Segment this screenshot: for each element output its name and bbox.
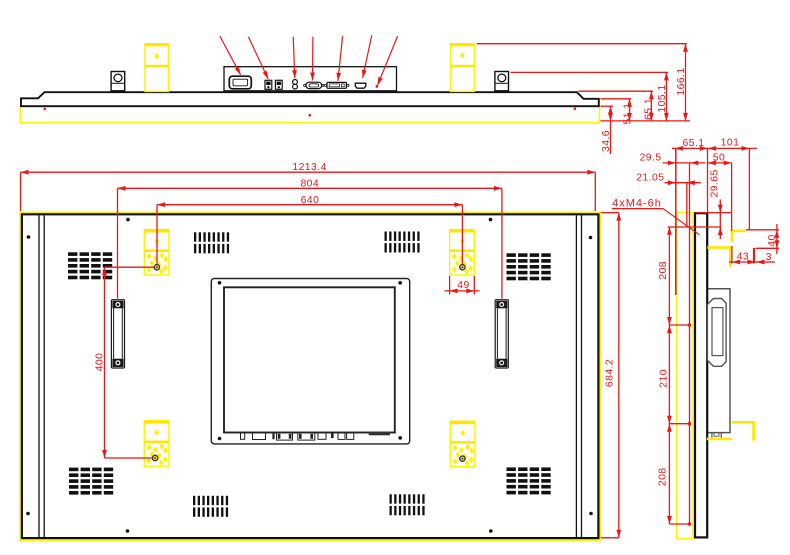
- svg-text:210: 210: [659, 369, 670, 388]
- svg-text:43: 43: [737, 252, 749, 263]
- svg-text:29.5: 29.5: [640, 153, 662, 164]
- svg-text:21.05: 21.05: [636, 173, 664, 184]
- svg-text:101: 101: [721, 138, 740, 149]
- svg-text:684.2: 684.2: [605, 359, 616, 387]
- svg-text:208: 208: [658, 261, 669, 280]
- svg-text:65.1: 65.1: [682, 138, 704, 149]
- svg-text:29.65: 29.65: [710, 169, 721, 197]
- svg-text:3: 3: [766, 252, 772, 263]
- svg-text:804: 804: [300, 178, 319, 189]
- svg-text:208: 208: [658, 467, 669, 486]
- svg-text:105.1: 105.1: [657, 84, 668, 112]
- svg-text:4xM4-6h: 4xM4-6h: [612, 197, 662, 209]
- svg-text:40: 40: [767, 234, 778, 246]
- svg-text:49: 49: [457, 280, 469, 291]
- svg-text:51.1: 51.1: [622, 102, 633, 124]
- svg-text:65.1: 65.1: [644, 98, 655, 120]
- svg-text:640: 640: [301, 195, 320, 206]
- svg-text:166.1: 166.1: [676, 67, 687, 95]
- svg-text:400: 400: [94, 353, 105, 372]
- svg-text:50: 50: [713, 152, 725, 163]
- svg-text:34.6: 34.6: [601, 130, 612, 152]
- svg-text:1213.4: 1213.4: [292, 162, 326, 173]
